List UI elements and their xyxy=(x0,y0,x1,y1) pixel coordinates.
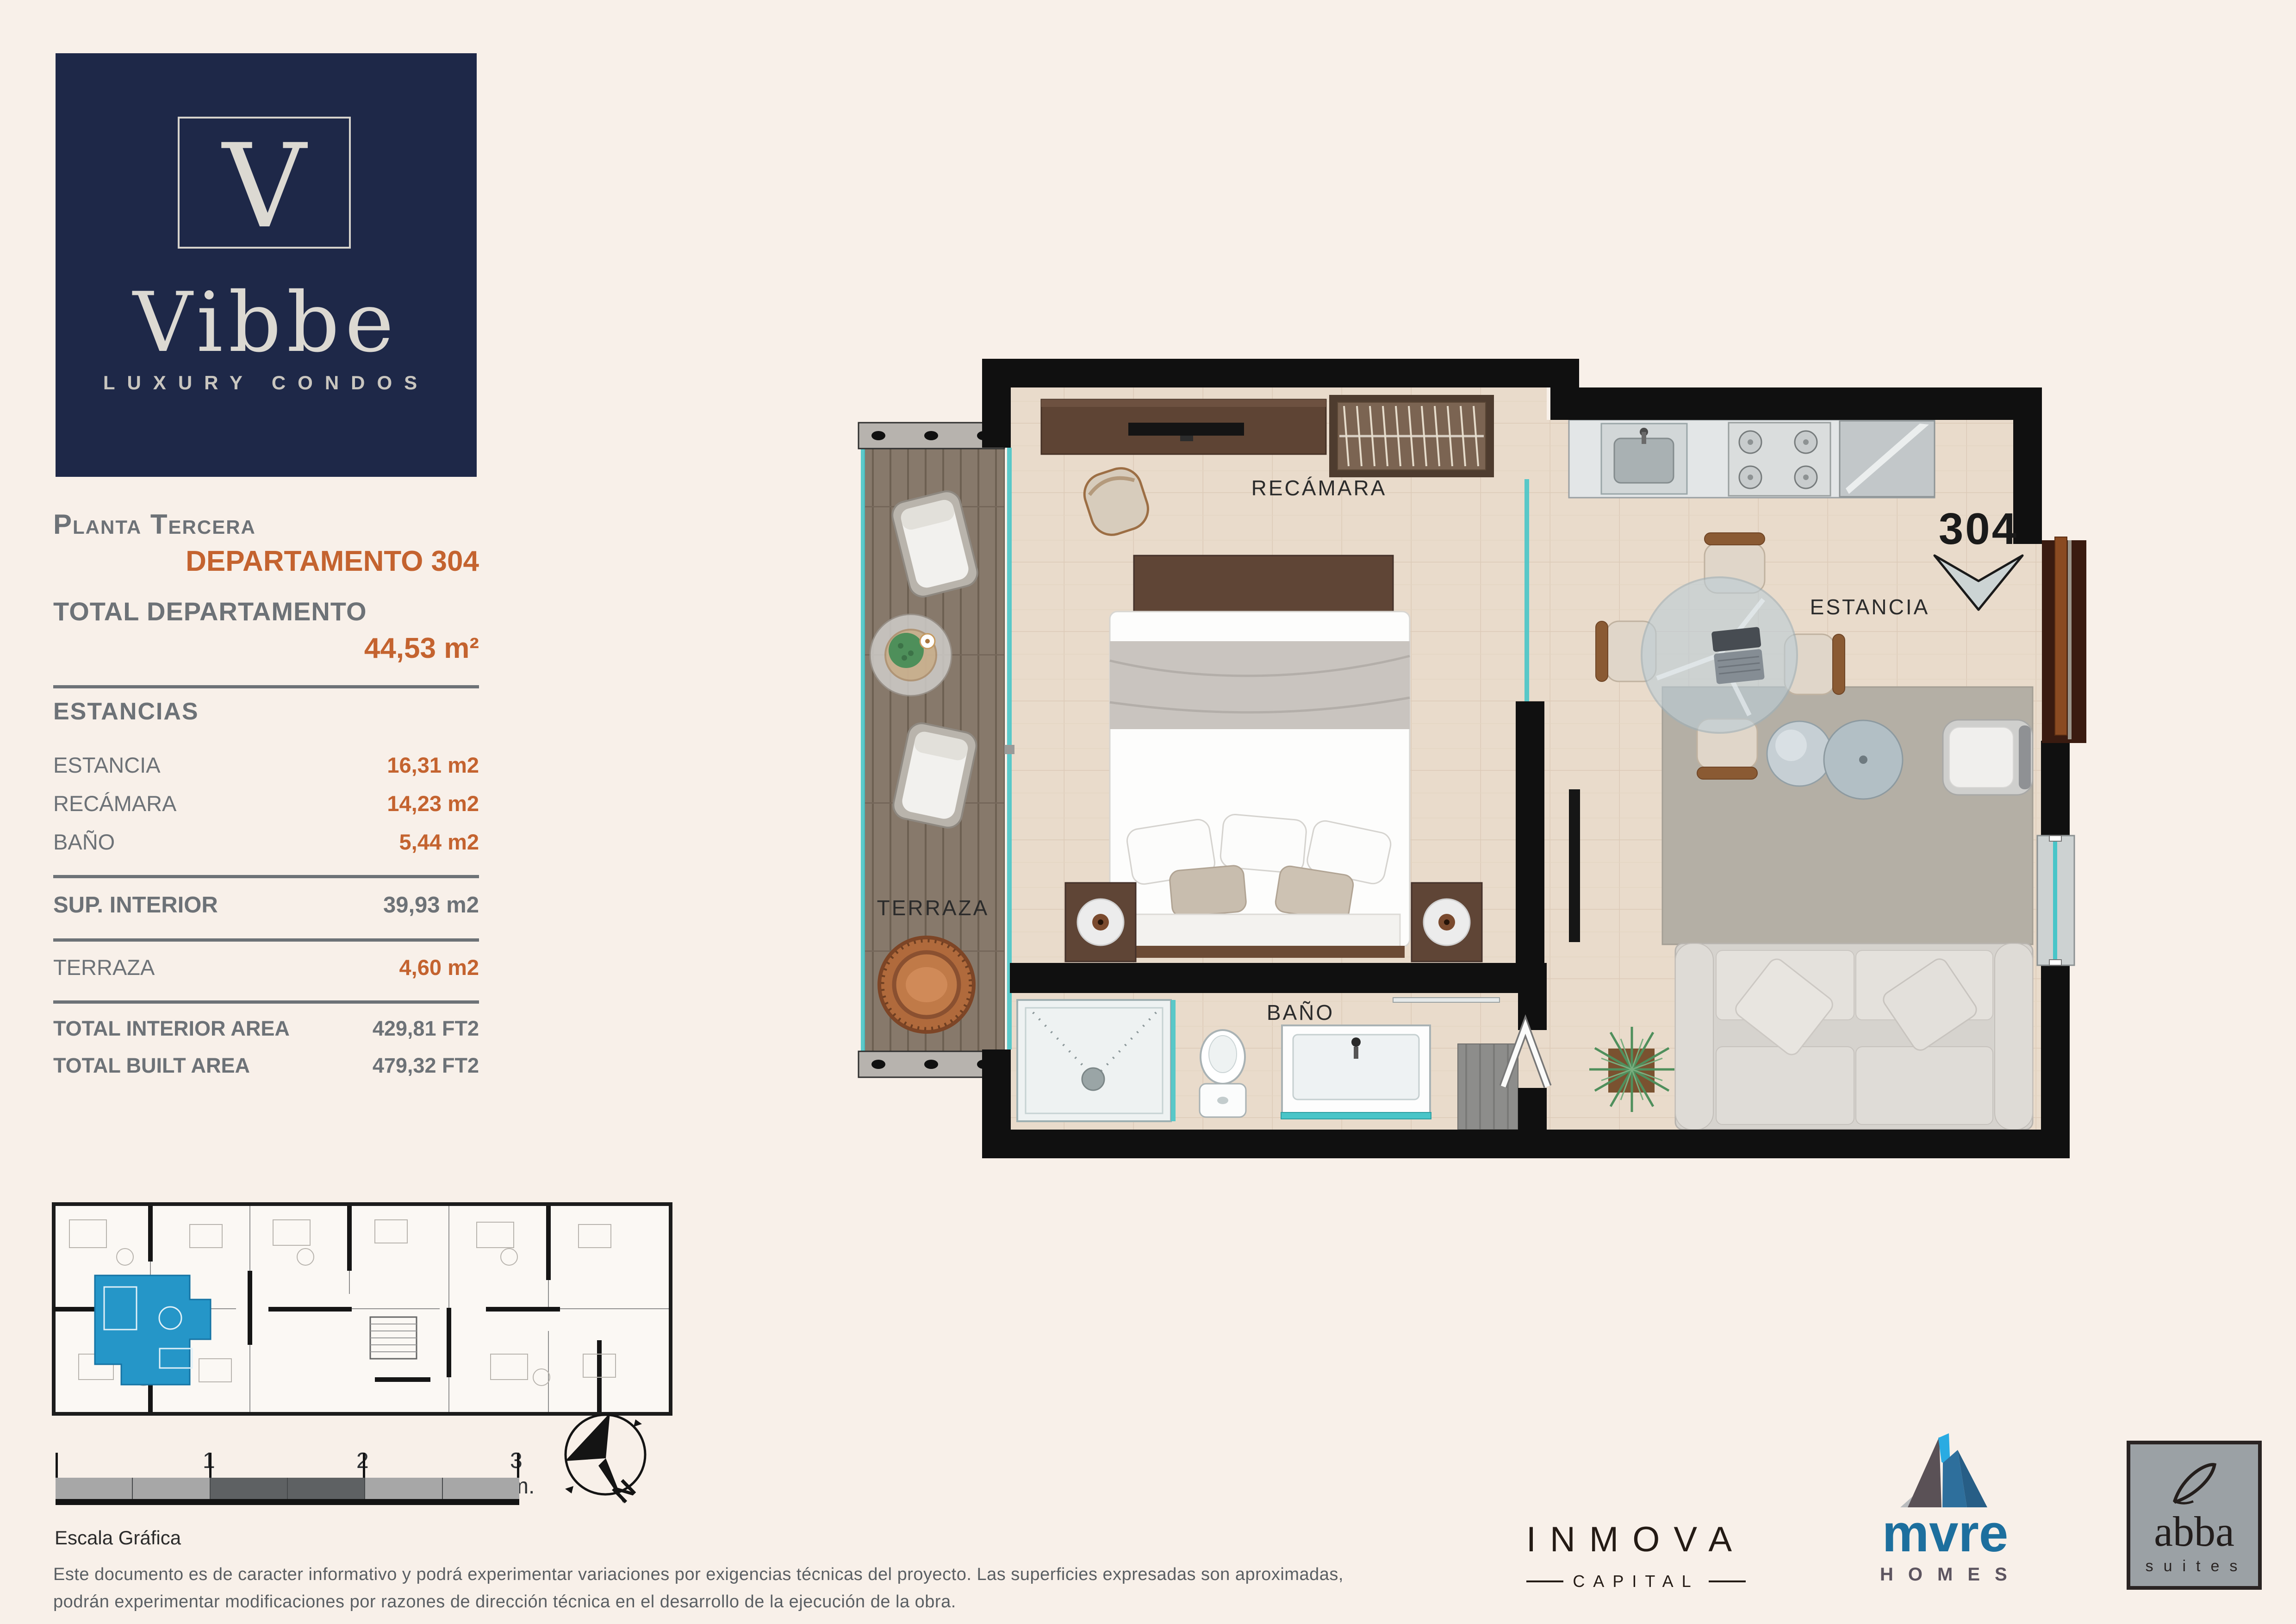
mvre-homes-label: HOMES xyxy=(1880,1564,2017,1585)
area-label: RECÁMARA xyxy=(53,791,176,816)
abba-suites-label: suites xyxy=(2146,1557,2248,1575)
inmova-capital-label: CAPITAL xyxy=(1573,1572,1699,1591)
bedroom-closet xyxy=(1329,395,1494,477)
legal-disclaimer: Este documento es de caracter informativ… xyxy=(53,1561,1516,1616)
sup-interior-row: SUP. INTERIOR 39,93 m2 xyxy=(53,892,479,918)
towel-bar xyxy=(1393,998,1500,1002)
terraza-table-plant xyxy=(870,614,952,696)
divider xyxy=(53,1000,479,1004)
dash-line xyxy=(1526,1580,1563,1582)
inmova-wordmark: INMOVA xyxy=(1506,1519,1766,1560)
bedroom-console-tv xyxy=(1041,400,1326,454)
tv-panel xyxy=(1569,789,1580,942)
brand-card: V Vibbe LUXURY CONDOS xyxy=(56,53,477,477)
area-label: ESTANCIA xyxy=(53,752,161,778)
divider xyxy=(53,685,479,688)
total-interior-area-row: TOTAL INTERIOR AREA 429,81 FT2 xyxy=(53,1017,479,1041)
nightstand-left xyxy=(1065,883,1136,962)
sup-interior-label: SUP. INTERIOR xyxy=(53,892,218,918)
label-unit-number: 304 xyxy=(1939,504,2018,554)
floor-title: Planta Tercera xyxy=(53,508,479,540)
shower xyxy=(1017,1000,1176,1121)
building-key-plan xyxy=(51,1201,673,1417)
abba-wordmark: abba xyxy=(2154,1510,2234,1553)
bed xyxy=(1110,556,1410,958)
area-row-recamara: RECÁMARA 14,23 m2 xyxy=(53,791,479,816)
unit-info-panel: Planta Tercera DEPARTAMENTO 304 TOTAL DE… xyxy=(53,508,479,1078)
total-built-area-value: 479,32 FT2 xyxy=(373,1054,479,1078)
total-departamento-value: 44,53 m² xyxy=(53,632,479,665)
window xyxy=(2037,836,2074,965)
mvre-mountain-icon xyxy=(1897,1433,1994,1510)
brand-name: Vibbe xyxy=(56,275,477,370)
label-estancia: ESTANCIA xyxy=(1810,595,1930,619)
total-built-area-row: TOTAL BUILT AREA 479,32 FT2 xyxy=(53,1054,479,1078)
dash-line xyxy=(1709,1580,1746,1582)
abba-suites-logo: abba suites xyxy=(2127,1441,2262,1590)
nightstand-right xyxy=(1412,883,1482,962)
floorplan-sheet: V Vibbe LUXURY CONDOS Planta Tercera DEP… xyxy=(0,0,2296,1624)
estancias-header: ESTANCIAS xyxy=(53,698,479,725)
total-built-area-label: TOTAL BUILT AREA xyxy=(53,1054,250,1078)
disclaimer-line: Este documento es de caracter informativ… xyxy=(53,1561,1516,1588)
divider xyxy=(53,938,479,942)
apartment-floorplan: TERRAZA RECÁMARA BAÑO ESTANCIA 304 xyxy=(856,285,2110,1160)
bath-gray-floor xyxy=(1458,1044,1518,1130)
mvre-homes-logo: mvre HOMES xyxy=(1873,1433,2017,1585)
terraza-row: TERRAZA 4,60 m2 xyxy=(53,955,479,980)
toilet xyxy=(1200,1030,1246,1117)
scale-segment xyxy=(210,1478,287,1499)
divider xyxy=(53,875,479,878)
terraza-label: TERRAZA xyxy=(53,955,155,980)
area-value: 5,44 m2 xyxy=(399,829,479,855)
inmova-sub: CAPITAL xyxy=(1506,1572,1766,1591)
scale-segment xyxy=(56,1478,132,1499)
label-recamara: RECÁMARA xyxy=(1251,476,1387,500)
area-value: 14,23 m2 xyxy=(387,791,479,816)
brand-monogram-frame: V xyxy=(178,117,351,249)
scale-segment xyxy=(287,1478,364,1499)
disclaimer-line: podrán experimentar modificaciones por r… xyxy=(53,1588,1516,1616)
mvre-wordmark: mvre xyxy=(1873,1510,2017,1558)
sofa xyxy=(1675,943,2033,1130)
inmova-capital-logo: INMOVA CAPITAL xyxy=(1506,1519,1766,1591)
scale-segment xyxy=(442,1478,519,1499)
area-row-bano: BAÑO 5,44 m2 xyxy=(53,829,479,855)
kitchen-counter xyxy=(1569,420,1935,498)
area-row-estancia: ESTANCIA 16,31 m2 xyxy=(53,752,479,778)
brand-monogram: V xyxy=(223,129,306,244)
area-label: BAÑO xyxy=(53,829,115,855)
scale-bar xyxy=(56,1478,519,1505)
total-interior-area-value: 429,81 FT2 xyxy=(373,1017,479,1041)
total-departamento-label: TOTAL DEPARTAMENTO xyxy=(53,596,479,626)
north-compass: N xyxy=(558,1403,655,1514)
label-bano: BAÑO xyxy=(1267,1000,1334,1024)
sup-interior-value: 39,93 m2 xyxy=(383,892,479,918)
total-interior-area-label: TOTAL INTERIOR AREA xyxy=(53,1017,290,1041)
abba-leaf-icon xyxy=(2166,1460,2222,1506)
unit-title: DEPARTAMENTO 304 xyxy=(53,545,479,578)
scale-segment xyxy=(132,1478,209,1499)
armchair xyxy=(1943,720,2033,795)
vanity xyxy=(1281,1025,1431,1119)
scale-segment xyxy=(364,1478,442,1499)
entry-door xyxy=(2042,537,2086,743)
graphic-scale: 1 2 3 m. xyxy=(56,1448,519,1529)
area-value: 16,31 m2 xyxy=(387,752,479,778)
terraza-basket-chair xyxy=(879,937,974,1032)
label-terraza: TERRAZA xyxy=(877,896,989,920)
terraza-value: 4,60 m2 xyxy=(399,955,479,980)
brand-tagline: LUXURY CONDOS xyxy=(56,372,477,394)
scale-caption: Escala Gráfica xyxy=(55,1527,181,1549)
